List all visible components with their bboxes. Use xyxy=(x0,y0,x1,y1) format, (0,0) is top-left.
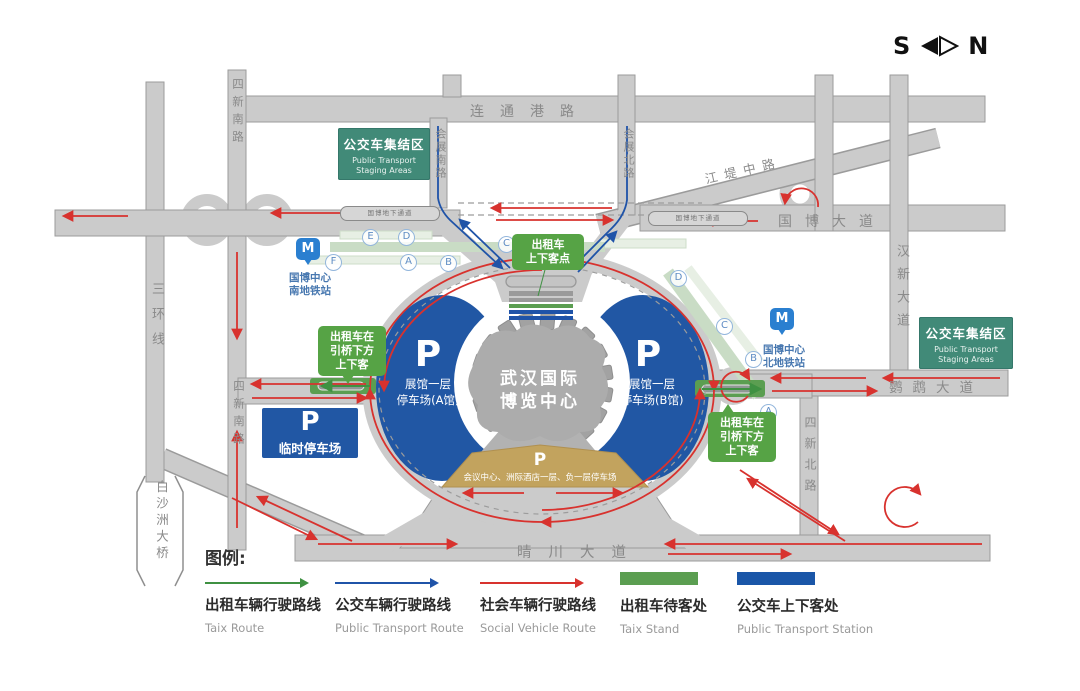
parking-a-line2: 停车场(A馆) xyxy=(383,392,473,408)
legend-item-bus-station: 公交车上下客处 Public Transport Station xyxy=(737,570,873,636)
taxi-route-arrow-icon xyxy=(205,582,300,584)
metro-exit-c-north: C xyxy=(716,318,733,335)
legend-en: Taix Stand xyxy=(620,622,707,636)
metro-icon-south: M xyxy=(296,238,320,260)
underpass-capsule-east: 国博地下通道 xyxy=(648,211,748,226)
road-label-huizhan-south: 会展南路 xyxy=(432,128,448,180)
center-building-label: 武汉国际 博览中心 xyxy=(480,368,600,414)
metro-exit-e: E xyxy=(362,229,379,246)
metro-exit-a-south: A xyxy=(400,254,417,271)
temporary-parking-label: 临时停车场 xyxy=(268,438,352,457)
road-label-third-ring: 三环线 xyxy=(147,282,166,357)
legend-zh: 公交车辆行驶路线 xyxy=(335,594,464,615)
metro-south-name-line1: 国博中心 xyxy=(278,272,342,285)
legend-en: Taix Route xyxy=(205,621,321,635)
legend-zh: 公交车上下客处 xyxy=(737,595,873,616)
legend-item-bus-route: 公交车辆行驶路线 Public Transport Route xyxy=(335,574,464,635)
callout-line: 上下客 xyxy=(713,444,771,458)
legend-zh: 出租车待客处 xyxy=(620,595,707,616)
staging-area-subtitle: Public Transport Staging Areas xyxy=(341,156,427,176)
staging-area-box-west: 公交车集结区 Public Transport Staging Areas xyxy=(338,128,430,180)
road-label-baishazhou-bridge: 白沙洲大桥 xyxy=(152,480,171,563)
center-name-line2: 博览中心 xyxy=(480,391,600,414)
compass-south-label: S xyxy=(893,32,910,60)
compass-needle-icon xyxy=(919,35,959,57)
legend-en: Public Transport Route xyxy=(335,621,464,635)
metro-exit-f: F xyxy=(325,254,342,271)
underpass-capsule-west: 国博地下通道 xyxy=(340,206,440,221)
temporary-parking-p: P xyxy=(290,407,330,437)
parking-a-line1: 展馆一层 xyxy=(383,376,473,392)
compass-north-label: N xyxy=(968,32,988,60)
bus-route-arrow-icon xyxy=(335,582,430,584)
metro-exit-b-south: B xyxy=(440,255,457,272)
legend-zh: 社会车辆行驶路线 xyxy=(480,594,596,615)
parking-b-line2: 停车场(B馆) xyxy=(607,392,697,408)
callout-line: 引桥下方 xyxy=(323,344,381,358)
staging-area-title: 公交车集结区 xyxy=(341,134,427,153)
staging-area-title: 公交车集结区 xyxy=(922,323,1010,342)
legend-item-taxi-route: 出租车辆行驶路线 Taix Route xyxy=(205,574,321,635)
legend-en: Public Transport Station xyxy=(737,622,873,636)
callout-taxi-pickup-point: 出租车 上下客点 xyxy=(512,234,584,270)
road-label-yingwu: 鹦鹉大道 xyxy=(876,376,996,396)
metro-exit-d-south: D xyxy=(398,229,415,246)
legend-item-social-route: 社会车辆行驶路线 Social Vehicle Route xyxy=(480,574,596,635)
staging-area-subtitle: Public Transport Staging Areas xyxy=(922,345,1010,365)
legend-item-taxi-stand: 出租车待客处 Taix Stand xyxy=(620,570,707,636)
taxi-stand-swatch-icon xyxy=(620,572,698,585)
social-route-arrow-icon xyxy=(480,582,575,584)
road-label-sixin-south-bottom: 四新南路 xyxy=(231,380,247,450)
legend-title: 图例: xyxy=(205,544,246,569)
callout-line: 出租车在 xyxy=(713,416,771,430)
callout-line: 上下客点 xyxy=(517,252,579,266)
parking-b-line1: 展馆一层 xyxy=(607,376,697,392)
callout-taxi-under-bridge-east: 出租车在 引桥下方 上下客 xyxy=(708,412,776,462)
metro-exit-b-north: B xyxy=(745,351,762,368)
parking-b-label: 展馆一层 停车场(B馆) xyxy=(607,376,697,408)
basement-parking-p: P xyxy=(520,450,560,470)
metro-north-name-line1: 国博中心 xyxy=(752,344,816,357)
metro-exit-d-north: D xyxy=(670,270,687,287)
metro-station-south-label: 国博中心 南地铁站 xyxy=(278,272,342,298)
basement-parking-label: 会议中心、洲际酒店一层、负一层停车场 xyxy=(440,471,640,483)
metro-icon-north: M xyxy=(770,308,794,330)
parking-a-p: P xyxy=(408,334,448,375)
parking-b-p: P xyxy=(628,334,668,375)
legend-en: Social Vehicle Route xyxy=(480,621,596,635)
road-label-hanxin: 汉新大道 xyxy=(892,244,911,336)
road-label-liantonggang: 连通港路 xyxy=(420,101,640,121)
road-label-qingchuan: 晴川大道 xyxy=(475,541,685,562)
legend-zh: 出租车辆行驶路线 xyxy=(205,594,321,615)
metro-south-name-line2: 南地铁站 xyxy=(278,285,342,298)
road-label-sixin-south-top: 四新南路 xyxy=(230,78,246,148)
staging-area-box-east: 公交车集结区 Public Transport Staging Areas xyxy=(919,317,1013,369)
entrance-stairs xyxy=(506,276,576,320)
bus-station-swatch-icon xyxy=(737,572,815,585)
callout-taxi-under-bridge-west: 出租车在 引桥下方 上下客 xyxy=(318,326,386,376)
center-name-line1: 武汉国际 xyxy=(480,368,600,391)
road-label-huizhan-north: 会展北路 xyxy=(620,128,636,180)
callout-line: 上下客 xyxy=(323,358,381,372)
callout-line: 引桥下方 xyxy=(713,430,771,444)
road-label-sixin-north: 四新北路 xyxy=(802,416,819,500)
callout-line: 出租车 xyxy=(517,238,579,252)
compass: S N xyxy=(893,32,988,60)
road-label-guobo-avenue: 国博大道 xyxy=(752,211,912,231)
parking-a-label: 展馆一层 停车场(A馆) xyxy=(383,376,473,408)
expo-traffic-map: S N 连通港路 三环线 四新南路 四新南路 会展南路 会展北路 江堤中路 国博… xyxy=(0,0,1080,691)
callout-line: 出租车在 xyxy=(323,330,381,344)
